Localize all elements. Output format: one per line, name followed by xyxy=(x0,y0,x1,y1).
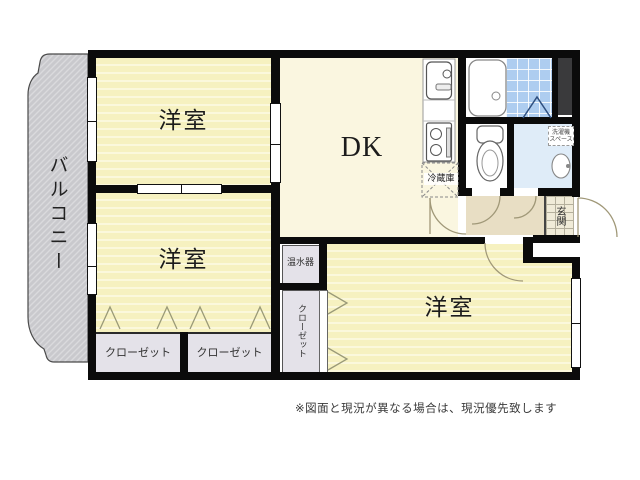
laundry-space-box: 洗濯機 スペース xyxy=(548,126,574,146)
window-mullion xyxy=(88,121,96,122)
closet2-label: クローゼット xyxy=(188,332,271,372)
washroom-door-gap xyxy=(514,188,538,196)
bedroom3-label: 洋室 xyxy=(327,244,572,372)
refrigerator-label: 冷蔵庫 xyxy=(424,173,458,185)
bedroom1-bedroom2-sliding-door xyxy=(137,184,222,194)
window-mullion xyxy=(181,185,182,193)
wall-kitchen-bath xyxy=(458,58,466,192)
bedroom3-right-window xyxy=(571,278,581,368)
wall-closet-mid xyxy=(180,332,188,372)
dk-label: DK xyxy=(292,58,432,237)
wall-center-column xyxy=(271,50,280,380)
bedroom2-label: 洋室 xyxy=(96,200,271,320)
entrance-label: 玄関 xyxy=(546,196,572,235)
wall-heater-split xyxy=(280,283,327,290)
wall-top xyxy=(88,50,580,58)
window-mullion xyxy=(572,323,580,324)
pipe-shaft-pillar xyxy=(558,58,572,115)
toilet-door-gap xyxy=(472,188,500,196)
entrance-door-arc xyxy=(578,198,617,237)
wall-dk-bedroom3 xyxy=(271,237,485,244)
wall-entrance-bottom xyxy=(533,235,580,243)
closet3-label: クローゼット xyxy=(282,290,319,371)
toilet-floor xyxy=(466,124,507,188)
water-heater-label: 温水器 xyxy=(282,245,319,282)
disclaimer-text: ※図面と現況が異なる場合は、現況優先致します xyxy=(295,400,557,416)
hallway-floor xyxy=(466,196,544,235)
window-mullion xyxy=(271,144,280,145)
wall-toilet-wash xyxy=(507,124,514,188)
closet1-label: クローゼット xyxy=(96,332,180,372)
balcony-label: バルコニー xyxy=(42,135,72,295)
window-mullion xyxy=(88,266,96,267)
wall-bottom xyxy=(88,372,580,380)
wall-right-upper xyxy=(572,50,580,197)
laundry-space-label-line1: 洗濯機 xyxy=(552,129,570,137)
bedroom1-label: 洋室 xyxy=(96,58,271,185)
bathroom-tiles xyxy=(506,58,552,117)
bedroom1-dk-sliding-door xyxy=(270,103,281,183)
bathroom-floor xyxy=(466,58,506,117)
laundry-space-label-line2: スペース xyxy=(549,136,572,144)
floorplan-canvas: バルコニー 洋室 洋室 洋室 DK クローゼット クローゼット 温水器 クローゼ… xyxy=(0,0,640,480)
wall-bath-bottom xyxy=(458,117,572,124)
